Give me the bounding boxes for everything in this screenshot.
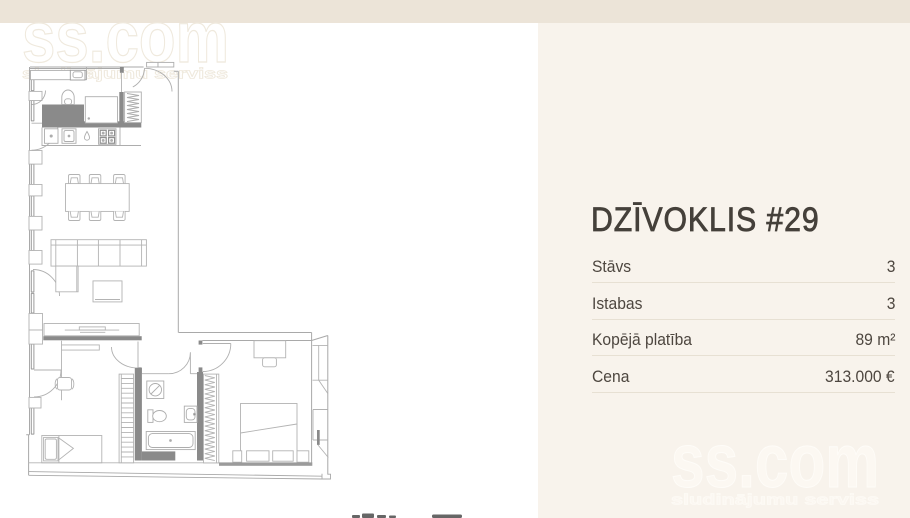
- svg-text:sludinājumu serviss: sludinājumu serviss: [671, 492, 879, 509]
